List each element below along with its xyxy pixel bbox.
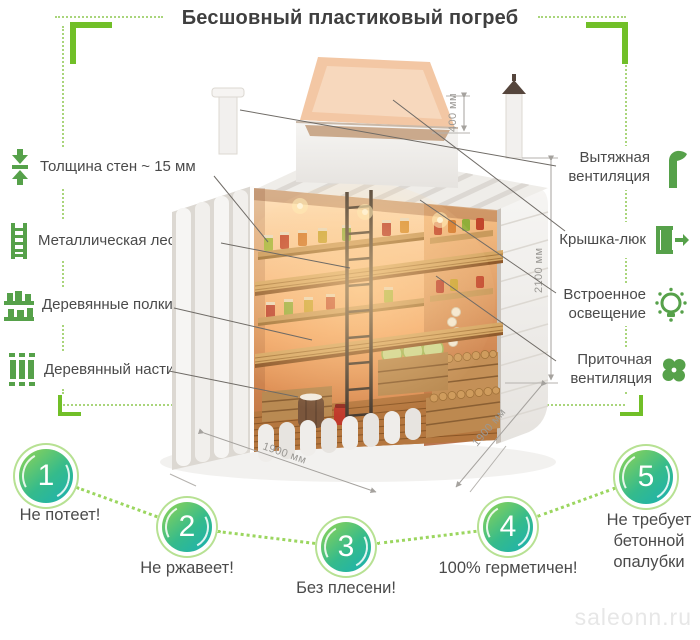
benefit-label-3: Без плесени! — [276, 578, 416, 599]
cellar-interior — [225, 182, 503, 452]
benefit-circle-3: 3 — [321, 522, 371, 572]
exhaust-vent-pipe — [212, 88, 244, 154]
page-title: Бесшовный пластиковый погреб — [0, 7, 700, 30]
benefit-circle-2: 2 — [162, 502, 212, 552]
benefit-number: 1 — [38, 459, 55, 493]
hatch-neck — [296, 57, 458, 188]
benefit-number: 4 — [500, 510, 517, 544]
benefit-circle-4: 4 — [483, 502, 533, 552]
supply-vent-pipe — [502, 74, 526, 158]
benefit-circle-1: 1 — [19, 449, 73, 503]
watermark: saleonn.ru — [575, 604, 692, 631]
benefit-label-1: Не потеет! — [0, 505, 120, 526]
benefit-number: 5 — [638, 460, 655, 494]
benefit-label-5: Не требует бетонной опалубки — [594, 510, 700, 573]
benefit-circle-5: 5 — [619, 450, 673, 504]
benefit-label-2: Не ржавеет! — [117, 558, 257, 579]
cellar-left-wall — [172, 186, 254, 470]
cellar-right-wall — [496, 188, 548, 444]
dimension-label-2100: 2100 мм — [533, 248, 545, 293]
benefit-number: 3 — [338, 530, 355, 564]
benefit-number: 2 — [179, 510, 196, 544]
dimension-label-400: 400 мм — [447, 93, 459, 132]
infographic: Толщина стен ~ 15 мм Металлическая лестн… — [0, 0, 700, 640]
benefit-label-4: 100% герметичен! — [428, 558, 588, 579]
